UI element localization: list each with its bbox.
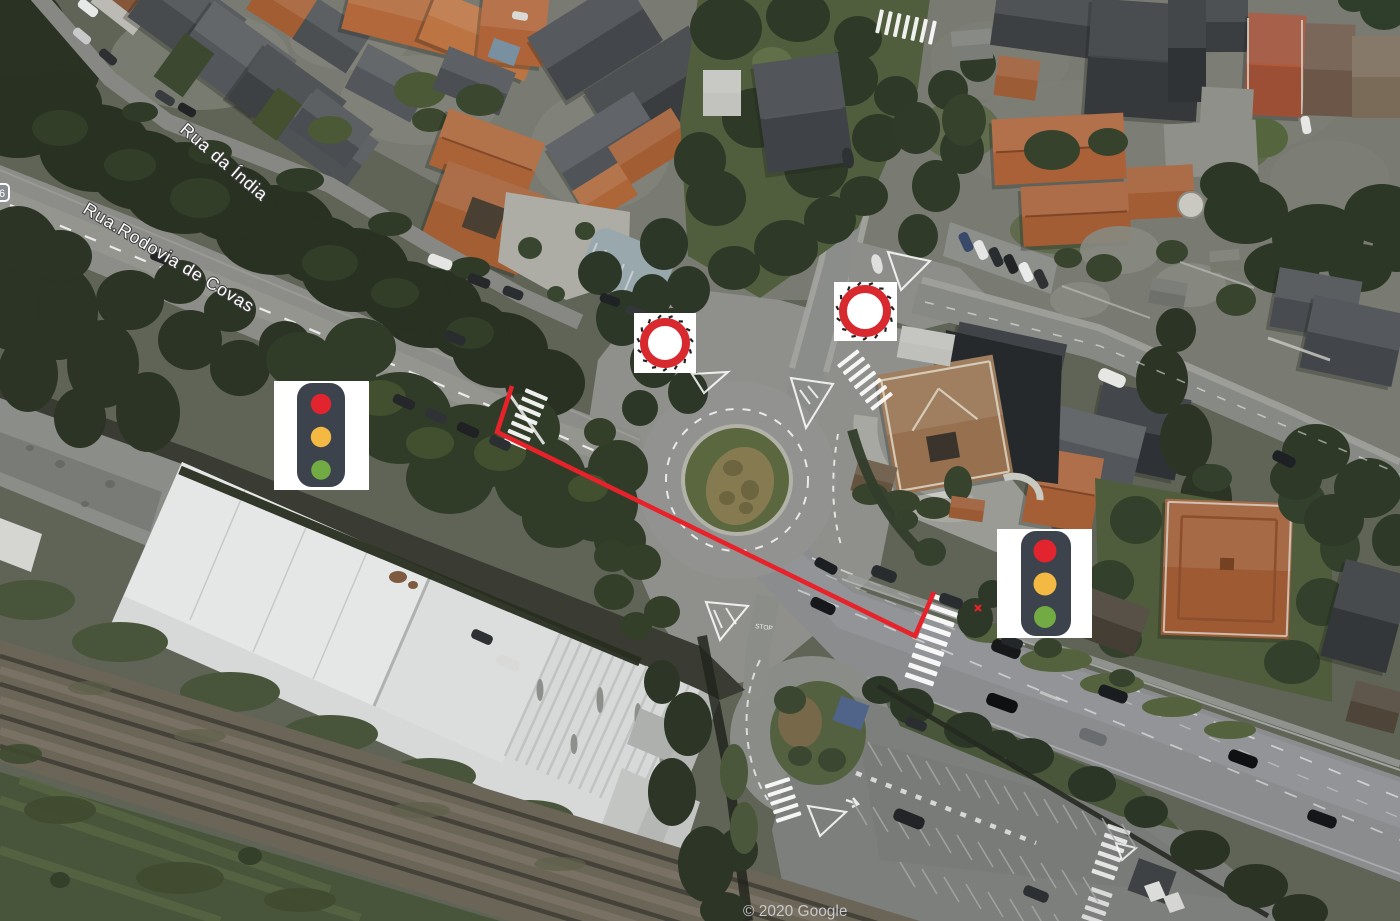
svg-text:© 2020 Google: © 2020 Google [743,903,848,920]
svg-text:6: 6 [0,188,5,200]
